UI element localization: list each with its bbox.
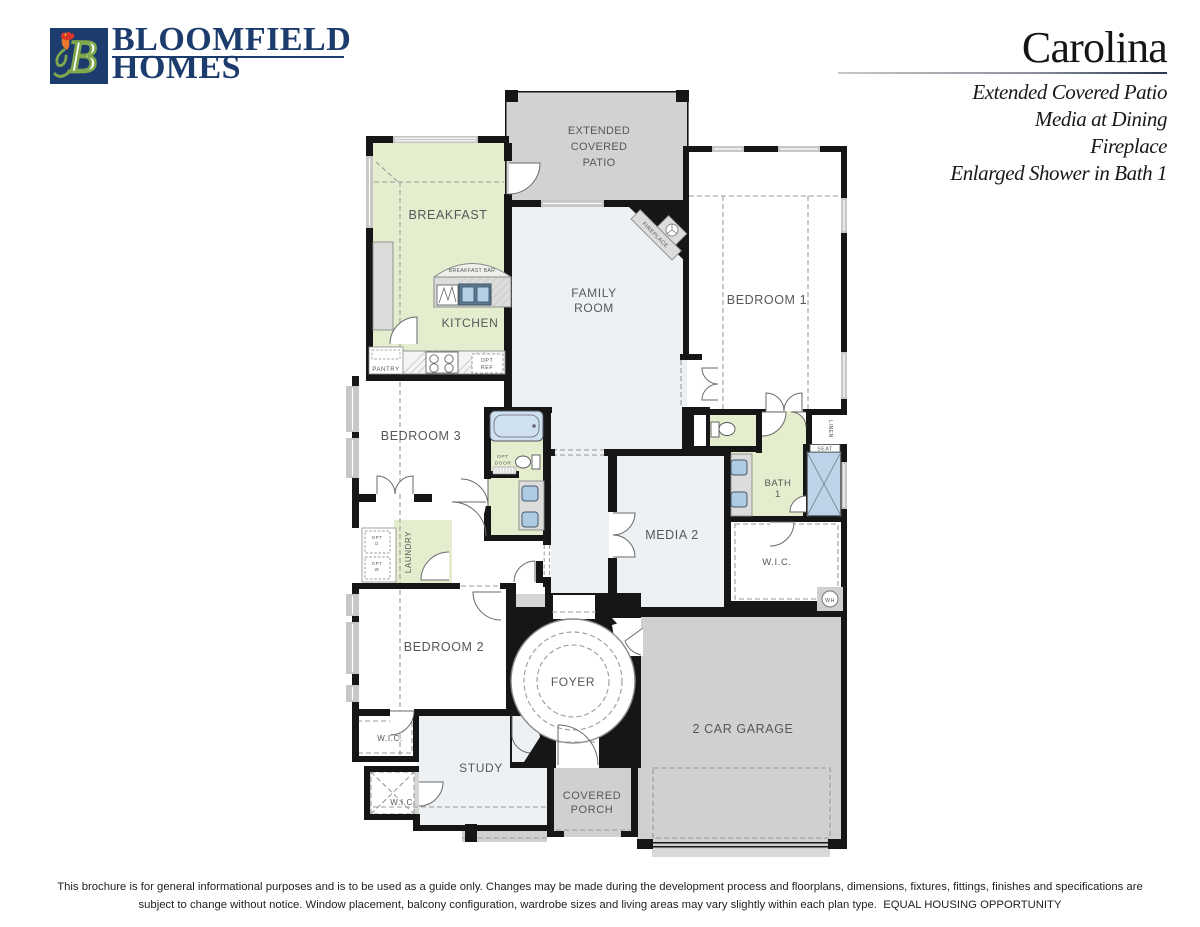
svg-text:2 CAR GARAGE: 2 CAR GARAGE xyxy=(693,722,794,736)
svg-text:BREAKFAST BAR: BREAKFAST BAR xyxy=(449,268,495,274)
svg-text:BEDROOM 3: BEDROOM 3 xyxy=(381,429,461,443)
svg-text:W.I.C.: W.I.C. xyxy=(377,734,402,743)
svg-text:WH: WH xyxy=(825,598,835,604)
svg-text:W.I.C.: W.I.C. xyxy=(390,798,415,807)
svg-text:BATH: BATH xyxy=(764,478,791,489)
svg-text:COVERED: COVERED xyxy=(563,790,622,802)
svg-text:ROOM: ROOM xyxy=(574,301,614,315)
svg-text:PATIO: PATIO xyxy=(583,157,616,169)
svg-text:LAUNDRY: LAUNDRY xyxy=(404,531,413,573)
svg-text:1: 1 xyxy=(775,489,781,500)
svg-text:DOOR: DOOR xyxy=(495,461,512,467)
svg-text:W.I.C.: W.I.C. xyxy=(762,557,791,568)
svg-text:FOYER: FOYER xyxy=(551,675,595,689)
svg-text:W: W xyxy=(375,567,380,572)
svg-text:SEAT: SEAT xyxy=(817,447,833,453)
svg-text:PANTRY: PANTRY xyxy=(372,367,399,373)
svg-text:OPT: OPT xyxy=(372,561,383,566)
svg-text:OPT: OPT xyxy=(481,358,494,364)
svg-text:BEDROOM 1: BEDROOM 1 xyxy=(727,293,807,307)
svg-text:STUDY: STUDY xyxy=(459,761,503,775)
svg-text:KITCHEN: KITCHEN xyxy=(442,316,499,330)
svg-text:BREAKFAST: BREAKFAST xyxy=(408,208,487,222)
svg-text:OPT: OPT xyxy=(497,454,509,460)
svg-text:LINEN: LINEN xyxy=(827,420,833,438)
svg-text:EXTENDED: EXTENDED xyxy=(568,125,630,137)
svg-text:OPT: OPT xyxy=(372,535,383,540)
svg-text:BEDROOM 2: BEDROOM 2 xyxy=(404,640,484,654)
svg-text:MEDIA 2: MEDIA 2 xyxy=(645,528,699,542)
svg-text:D: D xyxy=(375,541,379,546)
svg-text:COVERED: COVERED xyxy=(571,141,628,153)
svg-text:PORCH: PORCH xyxy=(571,804,614,816)
svg-text:REF: REF xyxy=(481,365,493,371)
svg-text:FAMILY: FAMILY xyxy=(571,286,616,300)
